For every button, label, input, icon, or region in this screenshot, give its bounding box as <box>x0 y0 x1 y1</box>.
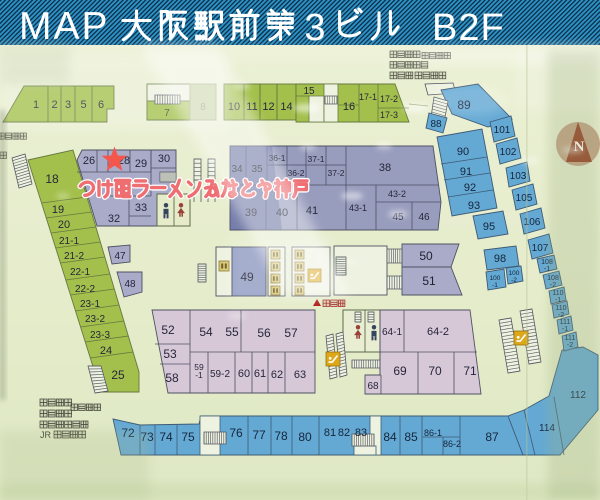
svg-text:36-2: 36-2 <box>287 168 304 178</box>
svg-text:43-1: 43-1 <box>349 203 367 213</box>
svg-text:54: 54 <box>199 325 213 339</box>
svg-text:88: 88 <box>430 119 442 130</box>
svg-text:19: 19 <box>52 204 64 216</box>
svg-text:69: 69 <box>393 364 407 378</box>
svg-text:17-1: 17-1 <box>359 92 377 102</box>
svg-text:53: 53 <box>163 347 177 361</box>
svg-text:29: 29 <box>135 158 147 170</box>
svg-text:18: 18 <box>45 172 59 186</box>
svg-text:26: 26 <box>83 155 95 167</box>
svg-text:23-1: 23-1 <box>80 299 100 310</box>
svg-text:12: 12 <box>262 101 274 113</box>
svg-text:64-1: 64-1 <box>382 327 402 338</box>
svg-text:100: 100 <box>490 275 501 282</box>
svg-text:51: 51 <box>422 274 436 288</box>
svg-text:37-2: 37-2 <box>327 168 344 178</box>
svg-text:55: 55 <box>225 325 239 339</box>
svg-text:95: 95 <box>483 221 495 233</box>
svg-text:64-2: 64-2 <box>427 326 449 338</box>
svg-text:21-2: 21-2 <box>64 251 84 262</box>
svg-text:81: 81 <box>324 427 336 439</box>
svg-text:3: 3 <box>304 7 325 49</box>
svg-text:92: 92 <box>464 182 476 194</box>
svg-text:76: 76 <box>229 426 243 440</box>
svg-text:107: 107 <box>532 243 549 254</box>
svg-text:50: 50 <box>419 249 433 263</box>
svg-text:100: 100 <box>509 270 520 277</box>
svg-text:24: 24 <box>100 345 112 357</box>
svg-text:105: 105 <box>516 193 533 204</box>
svg-text:20: 20 <box>58 219 70 231</box>
svg-text:-2: -2 <box>511 277 517 284</box>
svg-text:85: 85 <box>404 430 418 444</box>
svg-text:63: 63 <box>294 369 306 381</box>
svg-text:48: 48 <box>124 279 136 290</box>
svg-text:86-2: 86-2 <box>443 439 461 449</box>
svg-text:21-1: 21-1 <box>59 236 79 247</box>
svg-text:43-2: 43-2 <box>388 189 406 199</box>
svg-text:71: 71 <box>463 364 477 378</box>
svg-text:90: 90 <box>457 146 469 158</box>
svg-text:17-2: 17-2 <box>380 94 398 104</box>
svg-text:103: 103 <box>510 171 527 182</box>
svg-text:101: 101 <box>494 125 511 136</box>
svg-text:56: 56 <box>257 326 271 340</box>
svg-text:83: 83 <box>355 427 367 439</box>
svg-text:15: 15 <box>303 86 315 97</box>
svg-text:23-3: 23-3 <box>90 330 110 341</box>
svg-text:93: 93 <box>468 200 480 212</box>
svg-text:59-2: 59-2 <box>210 369 230 380</box>
svg-text:52: 52 <box>161 323 175 337</box>
svg-text:80: 80 <box>298 430 312 444</box>
svg-text:74: 74 <box>159 430 173 444</box>
svg-text:32: 32 <box>108 213 120 225</box>
svg-text:77: 77 <box>252 428 266 442</box>
svg-text:57: 57 <box>284 326 298 340</box>
svg-text:22-2: 22-2 <box>75 284 95 295</box>
svg-text:37-1: 37-1 <box>307 154 324 164</box>
svg-text:78: 78 <box>274 429 288 443</box>
svg-text:17-3: 17-3 <box>380 110 398 120</box>
svg-text:82: 82 <box>338 427 350 439</box>
svg-text:75: 75 <box>181 430 195 444</box>
svg-text:61: 61 <box>254 368 266 380</box>
svg-text:46: 46 <box>418 212 430 223</box>
svg-text:102: 102 <box>500 147 517 158</box>
svg-text:-1: -1 <box>195 370 203 380</box>
svg-text:70: 70 <box>428 364 442 378</box>
svg-text:B2F: B2F <box>432 7 505 49</box>
svg-text:98: 98 <box>494 253 506 265</box>
svg-text:60: 60 <box>238 368 250 380</box>
svg-text:23-2: 23-2 <box>85 314 105 325</box>
svg-text:25: 25 <box>111 368 125 382</box>
svg-text:47: 47 <box>114 251 126 262</box>
svg-text:14: 14 <box>280 101 292 113</box>
svg-text:30: 30 <box>158 153 170 165</box>
svg-text:68: 68 <box>367 381 379 392</box>
svg-text:84: 84 <box>383 430 397 444</box>
svg-text:58: 58 <box>165 371 179 385</box>
svg-text:38: 38 <box>379 162 391 174</box>
svg-text:33: 33 <box>135 202 147 214</box>
svg-text:91: 91 <box>460 166 472 178</box>
svg-text:62: 62 <box>271 369 283 381</box>
svg-text:86-1: 86-1 <box>424 428 442 438</box>
svg-text:87: 87 <box>485 430 499 444</box>
svg-text:MAP: MAP <box>19 5 110 48</box>
svg-text:-1: -1 <box>492 282 498 289</box>
svg-text:16: 16 <box>343 101 355 113</box>
svg-text:22-1: 22-1 <box>70 267 90 278</box>
